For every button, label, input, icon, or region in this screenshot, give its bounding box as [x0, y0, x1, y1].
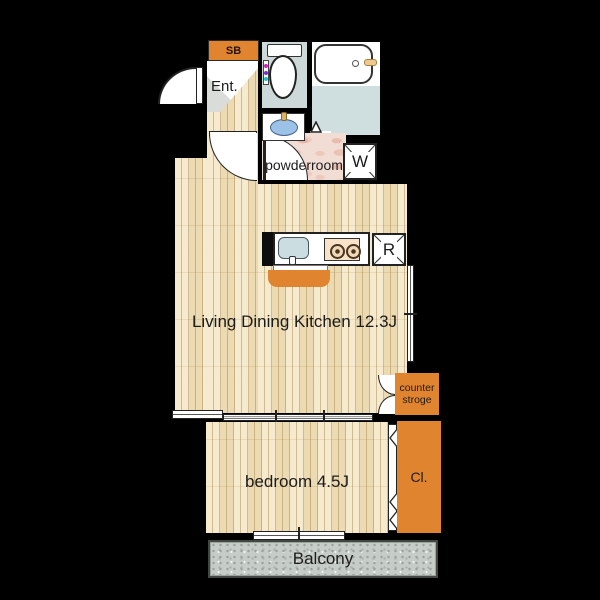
bedroom-label: bedroom 4.5J: [206, 472, 388, 492]
counter-storage-label-line1: counter: [399, 382, 434, 394]
bathroom-folding-door-icon: [310, 120, 322, 132]
sliding-door-partition-icon: [223, 414, 373, 421]
bidet-dot-purple: [264, 71, 268, 75]
front-door-swing-icon: [158, 67, 196, 104]
kitchen-serving-counter: [268, 270, 330, 287]
bathroom-floor: [312, 86, 380, 135]
counter-storage: counter stroge: [395, 373, 439, 415]
closet: Cl.: [397, 421, 441, 533]
balcony-label: Balcony: [293, 549, 353, 569]
vanity-faucet-icon: [281, 112, 287, 121]
stove-burner-icon: [330, 244, 345, 259]
closet-label: Cl.: [410, 469, 427, 485]
closet-bifold-doors-icon: [388, 424, 397, 531]
shoe-box: SB: [208, 40, 259, 61]
washing-machine-box: W: [343, 143, 377, 180]
kitchen-faucet-icon: [289, 256, 296, 265]
kitchen-wall-cap: [262, 232, 273, 266]
bathtub-drain-icon: [352, 60, 359, 67]
ldk-left-window-icon: [172, 410, 223, 419]
bidet-dot-cyan: [264, 77, 268, 81]
refrigerator-box: R: [372, 233, 406, 266]
balcony: Balcony: [208, 540, 438, 578]
shoe-box-label: SB: [226, 45, 241, 57]
ldk-floor-left: [175, 158, 207, 413]
front-door-leaf-icon: [196, 67, 203, 104]
ldk-label: Living Dining Kitchen 12.3J: [175, 312, 414, 332]
counter-storage-label-line2: stroge: [402, 394, 431, 406]
stove-burner-icon: [346, 244, 361, 259]
bidet-control-icon: [263, 60, 269, 85]
bidet-dot-magenta: [264, 64, 268, 68]
vanity-sink-icon: [270, 119, 298, 136]
refrigerator-label: R: [381, 240, 397, 260]
entrance-label: Ent.: [211, 78, 238, 95]
floor-plan: SB Ent. powderroom W: [0, 0, 600, 600]
washing-machine-label: W: [350, 152, 370, 172]
bathtub-handle-icon: [364, 59, 377, 66]
powder-room-label: powderroom: [262, 157, 346, 173]
